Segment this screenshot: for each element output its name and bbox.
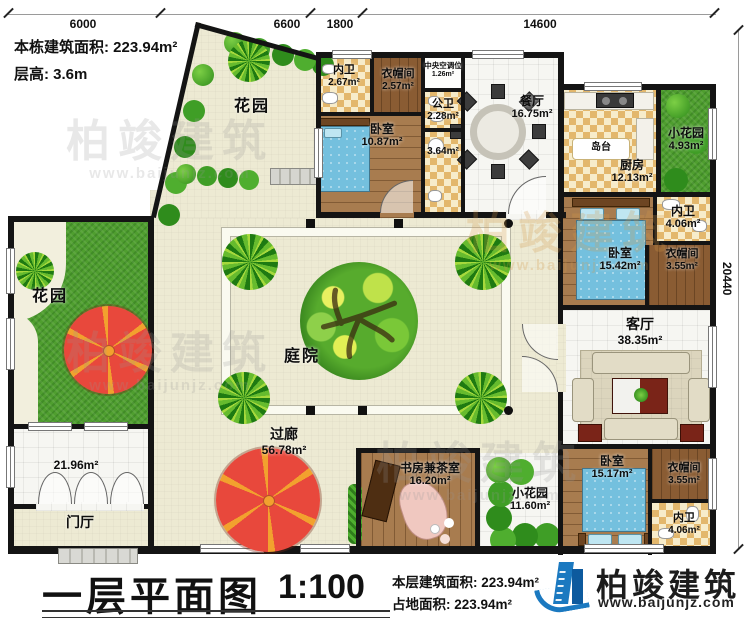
dim-label-6600: 6600 <box>274 17 301 31</box>
floor-height-text: 层高: 3.6m <box>14 61 177 88</box>
tea-cups <box>430 524 440 534</box>
room-label-yimao-right: 衣帽间3.55m² <box>666 248 699 273</box>
footer-land-area: 占地面积: 223.94m² <box>392 594 539 616</box>
room-label-bedroom-right: 卧室15.42m² <box>600 246 641 273</box>
courtyard-post <box>504 219 513 228</box>
window <box>708 108 717 160</box>
logo-swoosh <box>534 582 590 617</box>
wall-neiweiR-left <box>653 197 657 245</box>
window <box>472 50 524 59</box>
wall-dining-kitchen <box>558 52 564 215</box>
footer-floor-area: 本层建筑面积: 223.94m² <box>392 572 539 594</box>
kitchen-island: 岛台 <box>572 138 630 160</box>
small-garden-top-bushes <box>666 94 690 118</box>
room-label-neiwei-right: 内卫4.06m² <box>666 204 701 231</box>
sofa-armchair <box>688 378 710 422</box>
palm-plant <box>222 234 278 290</box>
wall-yimaoR-left <box>645 245 649 309</box>
brand-website: www.baijunjz.com <box>598 594 735 610</box>
window <box>584 82 642 91</box>
wall-neiweiR-bottom <box>653 241 716 245</box>
bed-pillow <box>324 128 342 138</box>
bed-pillow <box>616 208 640 220</box>
garden-umbrella <box>64 306 152 394</box>
dimension-line-right <box>738 30 739 550</box>
room-label-hvac: 中央空调位1.26m² <box>424 62 462 79</box>
dim-label-6000: 6000 <box>70 17 97 31</box>
window <box>84 422 128 431</box>
garden-left-tree <box>16 252 54 290</box>
room-label-neiwei-bottom: 内卫4.06m² <box>668 512 700 537</box>
toilet <box>322 92 338 104</box>
garden-bench <box>270 168 320 185</box>
dim-label-20440: 20440 <box>720 262 734 295</box>
garden-palm-tree <box>228 40 270 82</box>
room-label-garden-left: 花园 <box>32 288 68 307</box>
floor-plan-canvas: 本栋建筑面积: 223.94m² 层高: 3.6m 6000 6600 1800… <box>0 0 750 623</box>
room-label-hall364: 3.64m² <box>427 146 459 158</box>
corridor-umbrella <box>216 448 320 552</box>
window <box>6 318 15 370</box>
room-label-foyer: 门厅 <box>66 514 94 531</box>
room-label-yimao-bottom: 衣帽间3.55m² <box>668 462 701 487</box>
dining-chair <box>491 164 505 179</box>
room-label-yimao-top: 衣帽间2.57m² <box>382 68 415 93</box>
room-label-neiwei-top: 内卫2.67m² <box>328 64 360 89</box>
window <box>332 50 372 59</box>
room-label-kitchen: 厨房12.13m² <box>612 158 653 185</box>
table-plant <box>634 388 648 402</box>
dim-tick <box>3 8 14 19</box>
wall-study-left <box>356 448 361 552</box>
room-label-courtyard: 庭院 <box>284 348 320 367</box>
hedge-bushes-bottom <box>176 164 196 184</box>
window <box>708 326 717 388</box>
courtyard-post <box>306 219 315 228</box>
dim-tick <box>305 8 316 19</box>
palm-plant <box>455 372 507 424</box>
kitchen-counter <box>636 118 654 160</box>
room-label-small-garden-top: 小花园4.93m² <box>668 126 704 153</box>
room-label-living: 客厅38.35m² <box>618 316 663 347</box>
wall-hvac-bottom <box>421 88 465 92</box>
wall-foyer-right <box>148 430 154 552</box>
dim-tick <box>709 8 720 19</box>
window <box>300 544 350 553</box>
side-table <box>578 424 602 442</box>
room-label-bedroom-bottom: 卧室15.17m² <box>592 454 633 481</box>
wall-dining-left <box>461 58 465 214</box>
room-label-garden-topleft: 花园 <box>234 98 270 117</box>
hedge-bushes-left <box>192 64 214 86</box>
sofa-armchair <box>572 378 594 422</box>
footer-areas: 本层建筑面积: 223.94m² 占地面积: 223.94m² <box>392 572 539 616</box>
palm-plant <box>218 372 270 424</box>
courtyard-post <box>358 406 367 415</box>
wall-study-top <box>356 448 480 453</box>
palm-plant <box>455 234 511 290</box>
dim-tick <box>357 8 368 19</box>
side-table <box>680 424 704 442</box>
header-info: 本栋建筑面积: 223.94m² 层高: 3.6m <box>14 34 177 88</box>
title-underline <box>42 610 390 618</box>
wall-yimaoB-neiweiB <box>650 499 716 503</box>
wall-living-bottom <box>560 444 716 449</box>
kitchen-island-label: 岛台 <box>591 142 611 153</box>
bed-pillow <box>580 208 604 220</box>
room-label-dining: 餐厅16.75m² <box>512 94 553 121</box>
building-area-text: 本栋建筑面积: 223.94m² <box>14 34 177 61</box>
dim-tick <box>155 8 166 19</box>
courtyard-post <box>504 406 513 415</box>
courtyard-post <box>306 406 315 415</box>
window <box>6 248 15 294</box>
window <box>6 446 15 488</box>
small-garden-bottom-bushes <box>486 457 512 483</box>
wall-neiwei-yimao <box>370 58 374 116</box>
wall-kitchen-bottom <box>560 192 716 197</box>
room-label-gongwei: 公卫2.28m² <box>427 98 459 123</box>
dining-chair <box>491 84 505 99</box>
bed-headboard <box>572 198 650 207</box>
kitchen-stove <box>596 93 634 108</box>
sofa-loveseat <box>604 418 678 440</box>
room-label-bedroom-top: 卧室10.87m² <box>362 122 403 149</box>
sofa-long <box>592 352 690 374</box>
wall-grass-right <box>148 216 154 430</box>
room-label-terrace: 21.96m² <box>54 458 99 472</box>
entry-steps <box>58 548 138 564</box>
brand-logo-icon <box>536 562 592 614</box>
room-label-corridor: 过廊56.78m² <box>262 426 307 457</box>
wall-living-top <box>560 305 716 310</box>
courtyard-post <box>394 219 403 228</box>
window <box>708 458 717 510</box>
wall-gongwei-bottom <box>421 128 465 132</box>
wall-kitchen-garden <box>656 90 661 196</box>
window <box>584 544 664 553</box>
plan-scale: 1:100 <box>278 568 365 607</box>
window <box>314 128 323 178</box>
wall-neiwei-bottom <box>316 112 424 116</box>
room-label-small-garden-bottom: 小花园11.60m² <box>510 486 550 513</box>
dining-chair <box>532 124 546 139</box>
dim-label-1800: 1800 <box>327 17 354 31</box>
wall-column-left <box>421 58 425 214</box>
window <box>28 422 72 431</box>
wall-grass-top <box>8 216 154 222</box>
sink <box>428 190 442 202</box>
room-label-study: 书房兼茶室16.20m² <box>400 461 460 488</box>
wall-study-right <box>475 448 480 552</box>
dim-label-14600: 14600 <box>523 17 556 31</box>
